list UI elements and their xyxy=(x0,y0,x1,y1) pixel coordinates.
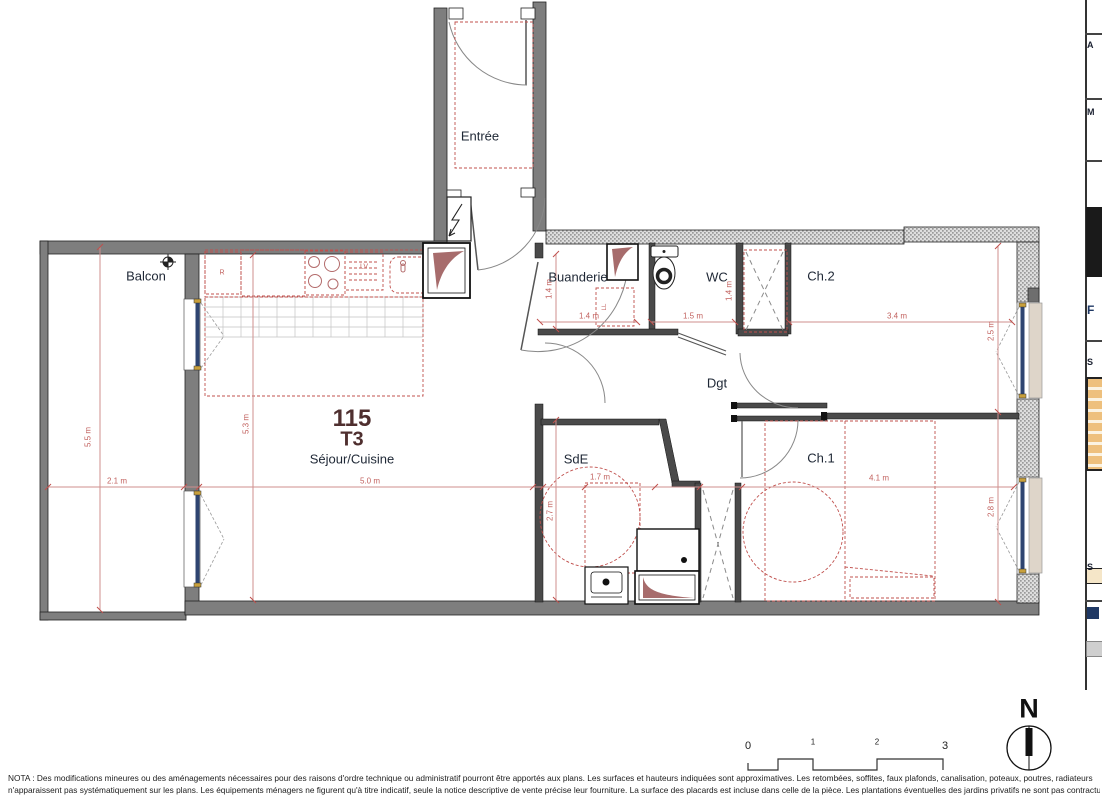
north-arrow-icon xyxy=(1007,726,1051,770)
north-label: N xyxy=(1019,694,1039,725)
cooktop-icon xyxy=(309,257,340,290)
room-label-balcon: Balcon xyxy=(126,269,166,284)
wall-corner-block xyxy=(1028,288,1039,303)
dim-ch2-depth: 2.5 m xyxy=(987,321,996,341)
nota-line-2: n'apparaissent pas systématiquement sur … xyxy=(8,785,1100,795)
window-sejour-lower xyxy=(184,491,224,587)
scale-tick-1: 1 xyxy=(811,738,815,747)
scale-bar xyxy=(748,759,943,770)
dim-sde-depth: 2.7 m xyxy=(546,501,555,521)
scale-tick-2: 2 xyxy=(875,738,879,747)
room-label-buanderie: Buanderie xyxy=(548,270,607,285)
legend-divider xyxy=(1085,600,1102,602)
dim-ch1-depth: 2.8 m xyxy=(987,497,996,517)
legend-gray-fragment xyxy=(1086,641,1102,657)
room-label-entree: Entrée xyxy=(461,129,499,144)
sink-faucet-icon xyxy=(401,261,406,273)
room-label-sejour-cuisine: Séjour/Cuisine xyxy=(310,452,395,467)
legend-table-fragment xyxy=(1086,377,1102,471)
washbasin-icon xyxy=(585,567,628,604)
legend-text-fragment: S xyxy=(1087,357,1102,367)
scale-tick-0: 0 xyxy=(745,740,751,752)
appliance-label-washer: LL xyxy=(602,304,608,311)
scale-tick-3: 3 xyxy=(942,740,948,752)
door-jambs xyxy=(447,8,535,199)
dim-buanderie-depth: 1.4 m xyxy=(545,279,554,299)
legend-text-fragment: F xyxy=(1087,303,1102,317)
floor-plan-drawing xyxy=(0,0,1102,800)
shower-icon xyxy=(635,571,699,604)
kitchen-zone-dashed xyxy=(205,297,423,396)
window-sejour-upper xyxy=(184,299,224,370)
room-label-dgt: Dgt xyxy=(707,376,727,391)
legend-divider xyxy=(1085,340,1102,342)
interior-walls xyxy=(535,243,1019,602)
nota-line-1: NOTA : Des modifications mineures ou des… xyxy=(8,773,1100,783)
dim-wc-width: 1.5 m xyxy=(683,312,703,321)
sde-door-panel xyxy=(637,529,699,571)
duct-entree xyxy=(423,243,470,298)
window-ch2 xyxy=(996,302,1042,399)
dim-balcon-depth: 5.5 m xyxy=(84,427,93,447)
legend-panel-border xyxy=(1085,0,1087,690)
dim-ch1-width: 4.1 m xyxy=(869,474,889,483)
electric-panel-icon xyxy=(447,197,471,241)
dim-buanderie-width: 1.4 m xyxy=(579,312,599,321)
legend-divider xyxy=(1085,160,1102,162)
dim-sejour-depth: 5.3 m xyxy=(242,414,251,434)
legend-text-fragment: M xyxy=(1087,107,1102,117)
dim-wc-depth: 1.4 m xyxy=(725,281,734,301)
legend-image-fragment xyxy=(1086,207,1102,277)
toilet-icon xyxy=(651,246,678,289)
legend-divider xyxy=(1085,33,1102,35)
appliance-label-fridge: R xyxy=(219,270,224,277)
kitchen-tiles xyxy=(205,297,423,337)
floor-plan-page: Entrée Balcon Buanderie WC Ch.2 Dgt SdE … xyxy=(0,0,1102,800)
legend-text-fragment: A xyxy=(1087,40,1102,50)
room-label-ch1: Ch.1 xyxy=(807,451,834,466)
dim-sejour-width: 5.0 m xyxy=(360,477,380,486)
duct-buanderie xyxy=(607,244,638,280)
legend-swatch-fragment xyxy=(1087,607,1099,619)
legend-text-fragment: S xyxy=(1087,562,1102,572)
room-label-ch2: Ch.2 xyxy=(807,269,834,284)
appliance-label-dishwasher: LV xyxy=(360,264,368,271)
unit-type: T3 xyxy=(340,429,363,452)
legend-divider xyxy=(1085,98,1102,100)
dim-balcon-width: 2.1 m xyxy=(107,477,127,486)
dim-sde-width: 1.7 m xyxy=(590,473,610,482)
window-ch1 xyxy=(996,477,1042,574)
dim-ch2-width: 3.4 m xyxy=(887,312,907,321)
room-label-sde: SdE xyxy=(564,452,589,467)
